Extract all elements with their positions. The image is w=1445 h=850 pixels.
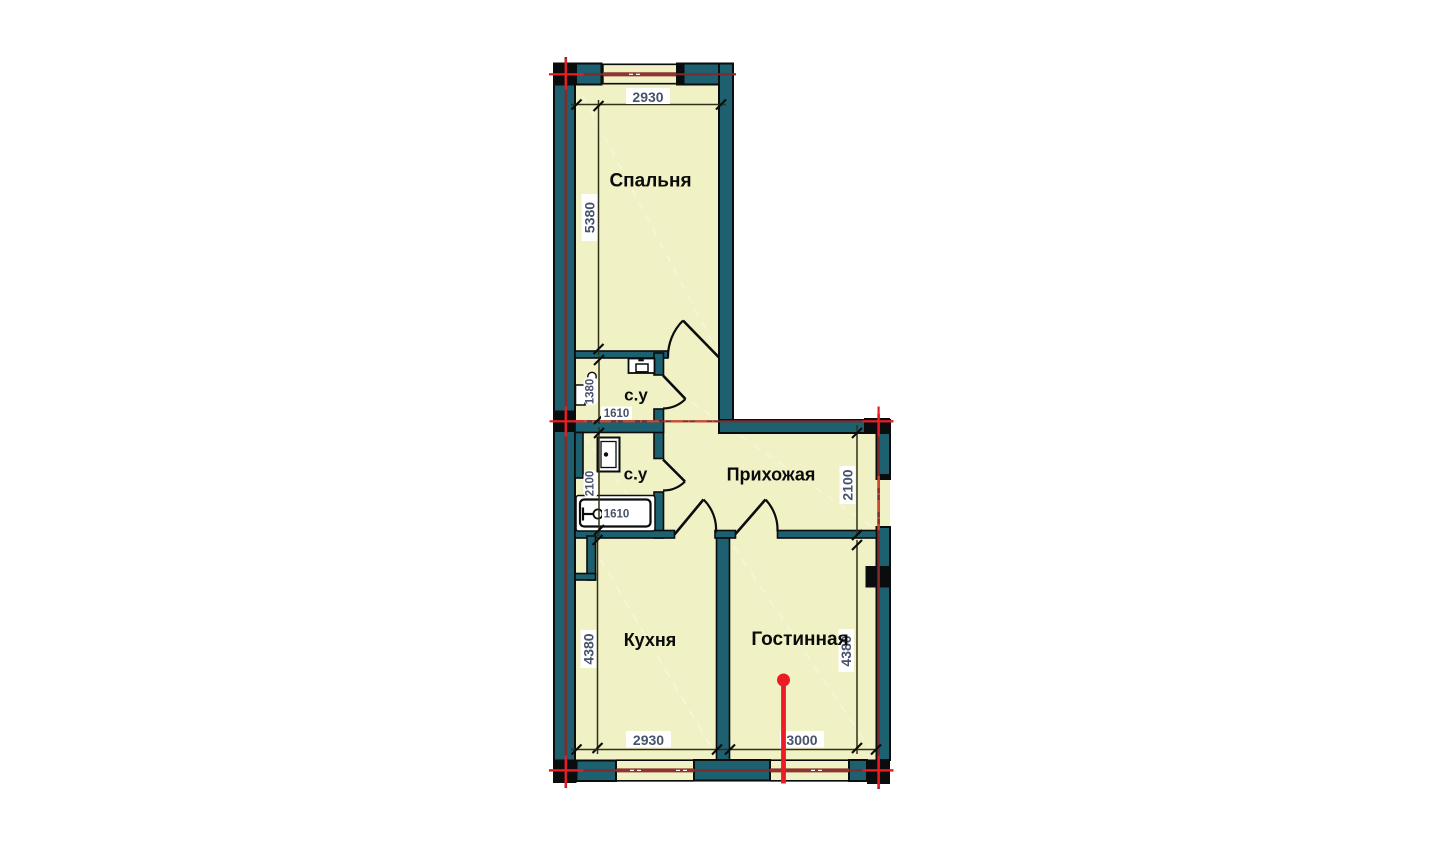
svg-text:3000: 3000 [786,732,817,748]
svg-text:2930: 2930 [632,89,663,105]
svg-text:Гостинная: Гостинная [751,629,848,650]
svg-text:1610: 1610 [604,509,630,521]
svg-text:1610: 1610 [604,408,630,420]
svg-text:Прихожая: Прихожая [727,465,816,485]
svg-text:2100: 2100 [840,469,856,500]
svg-text:2930: 2930 [633,732,664,748]
svg-text:с.у: с.у [624,386,648,405]
svg-text:2100: 2100 [585,471,597,497]
svg-text:Кухня: Кухня [624,630,677,650]
svg-text:с.у: с.у [624,465,648,484]
svg-text:Спальня: Спальня [609,171,691,192]
svg-text:5380: 5380 [582,202,598,233]
svg-text:1380: 1380 [585,379,597,405]
svg-text:4380: 4380 [581,633,597,664]
